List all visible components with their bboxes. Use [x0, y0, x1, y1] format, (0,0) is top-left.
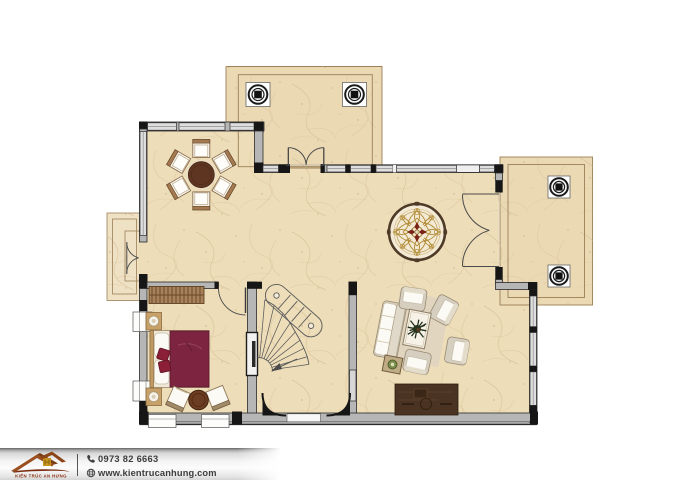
svg-text:KIẾN TRÚC AN HƯNG: KIẾN TRÚC AN HƯNG: [15, 474, 67, 479]
